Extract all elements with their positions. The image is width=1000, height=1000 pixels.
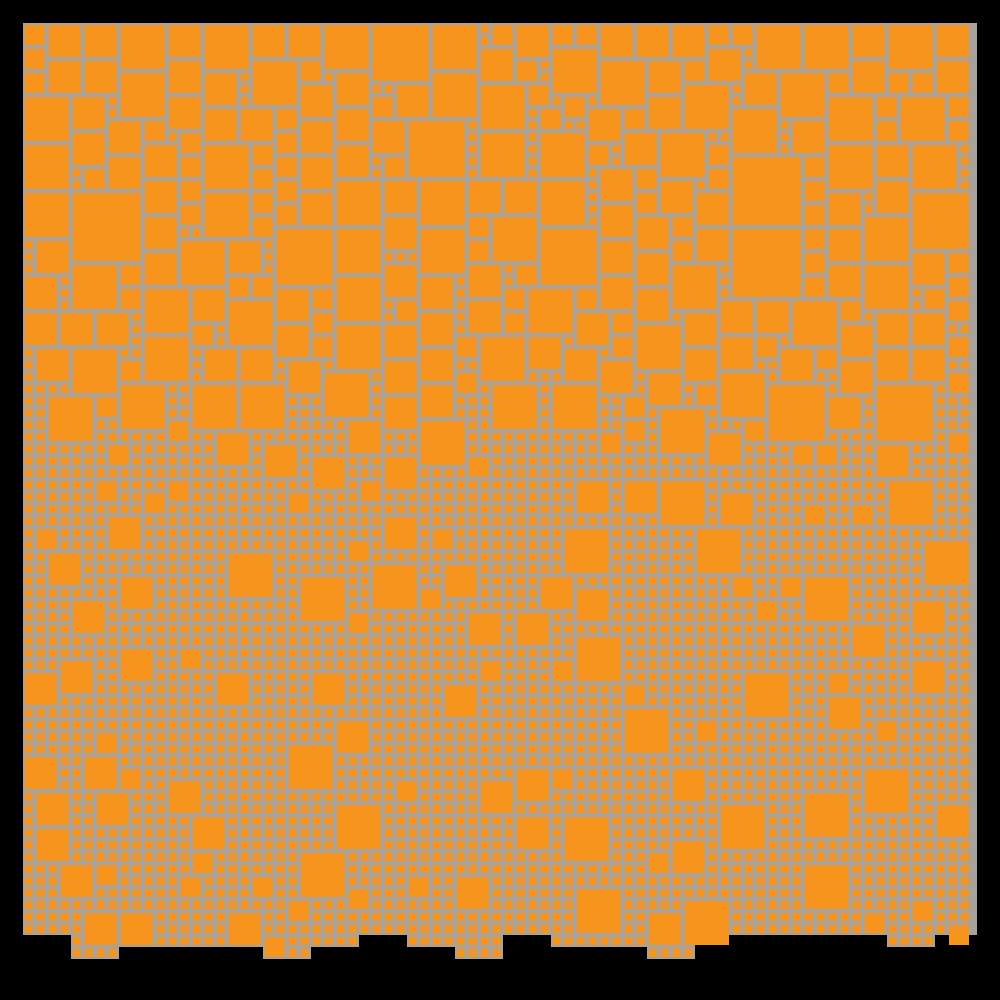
- mosaic-square: [637, 805, 645, 813]
- mosaic-square: [205, 925, 213, 933]
- mosaic-square: [637, 901, 645, 909]
- mosaic-square: [745, 61, 753, 69]
- mosaic-square: [133, 805, 141, 813]
- mosaic-square: [805, 637, 813, 645]
- mosaic-square: [421, 721, 429, 729]
- mosaic-square: [925, 745, 933, 753]
- mosaic-square: [505, 601, 513, 609]
- mosaic-square: [961, 781, 969, 789]
- mosaic-square: [217, 877, 225, 885]
- mosaic-square: [193, 529, 201, 537]
- mosaic-square: [289, 889, 297, 897]
- mosaic-square: [373, 757, 381, 765]
- mosaic-square: [469, 409, 477, 417]
- mosaic-square: [889, 841, 897, 849]
- mosaic-square: [673, 829, 681, 837]
- mosaic-square: [469, 925, 477, 933]
- mosaic-square: [805, 661, 813, 669]
- mosaic-square: [97, 949, 105, 957]
- mosaic-square: [721, 697, 729, 705]
- mosaic-square: [301, 457, 309, 465]
- mosaic-square: [805, 469, 813, 477]
- mosaic-square: [589, 445, 597, 453]
- mosaic-square: [541, 517, 549, 525]
- mosaic-square: [433, 733, 441, 741]
- mosaic-square: [745, 865, 753, 873]
- mosaic-square: [145, 289, 189, 333]
- mosaic-square: [217, 529, 225, 537]
- mosaic-square: [445, 817, 453, 825]
- mosaic-square: [73, 193, 141, 261]
- mosaic-square: [205, 541, 213, 549]
- mosaic-square: [133, 745, 141, 753]
- mosaic-square: [397, 865, 405, 873]
- mosaic-square: [541, 61, 549, 69]
- mosaic-square: [481, 133, 525, 177]
- mosaic-square: [277, 493, 285, 501]
- mosaic-square: [277, 565, 285, 573]
- mosaic-square: [721, 673, 729, 681]
- mosaic-square: [481, 829, 489, 837]
- mosaic-square: [781, 661, 789, 669]
- mosaic-square: [49, 721, 57, 729]
- mosaic-square: [469, 481, 477, 489]
- mosaic-square: [613, 721, 621, 729]
- mosaic-square: [541, 661, 549, 669]
- mosaic-square: [625, 421, 645, 441]
- mosaic-square: [745, 745, 753, 753]
- mosaic-square: [373, 397, 381, 405]
- mosaic-square: [889, 601, 897, 609]
- mosaic-square: [61, 733, 69, 741]
- mosaic-square: [325, 817, 333, 825]
- mosaic-square: [637, 445, 645, 453]
- mosaic-square: [37, 913, 45, 921]
- mosaic-square: [949, 337, 969, 357]
- mosaic-square: [25, 361, 33, 369]
- mosaic-square: [73, 445, 81, 453]
- mosaic-square: [457, 877, 489, 909]
- mosaic-square: [217, 673, 249, 705]
- mosaic-square: [793, 301, 837, 345]
- mosaic-square: [589, 709, 597, 717]
- mosaic-square: [469, 613, 501, 645]
- mosaic-square: [877, 853, 885, 861]
- mosaic-square: [361, 601, 369, 609]
- mosaic-square: [397, 805, 405, 813]
- mosaic-square: [829, 529, 837, 537]
- mosaic-square: [373, 889, 381, 897]
- mosaic-square: [841, 445, 849, 453]
- mosaic-square: [829, 541, 837, 549]
- mosaic-square: [289, 625, 297, 633]
- mosaic-square: [217, 517, 225, 525]
- mosaic-square: [349, 541, 369, 561]
- mosaic-square: [97, 589, 105, 597]
- mosaic-square: [529, 913, 537, 921]
- mosaic-square: [73, 493, 81, 501]
- mosaic-square: [577, 697, 585, 705]
- artwork-frame: [0, 0, 1000, 1000]
- mosaic-square: [805, 745, 813, 753]
- mosaic-square: [73, 457, 81, 465]
- mosaic-square: [793, 853, 801, 861]
- mosaic-square: [409, 613, 417, 621]
- mosaic-square: [493, 721, 501, 729]
- mosaic-square: [313, 541, 321, 549]
- mosaic-square: [445, 805, 453, 813]
- mosaic-square: [145, 877, 153, 885]
- mosaic-square: [337, 913, 345, 921]
- mosaic-square: [505, 433, 513, 441]
- mosaic-square: [409, 493, 417, 501]
- mosaic-square: [517, 925, 525, 933]
- mosaic-square: [349, 637, 357, 645]
- mosaic-square: [877, 817, 885, 825]
- mosaic-square: [361, 769, 369, 777]
- mosaic-square: [277, 589, 285, 597]
- mosaic-square: [277, 877, 285, 885]
- mosaic-square: [685, 829, 693, 837]
- mosaic-square: [325, 937, 333, 945]
- mosaic-square: [265, 481, 273, 489]
- mosaic-square: [217, 769, 225, 777]
- mosaic-square: [625, 685, 645, 705]
- mosaic-square: [673, 889, 681, 897]
- mosaic-square: [493, 709, 501, 717]
- mosaic-square: [901, 865, 909, 873]
- mosaic-square: [745, 793, 753, 801]
- mosaic-square: [913, 901, 933, 921]
- mosaic-square: [769, 661, 777, 669]
- mosaic-square: [205, 109, 237, 141]
- mosaic-square: [445, 793, 453, 801]
- mosaic-square: [745, 757, 753, 765]
- mosaic-square: [445, 637, 453, 645]
- mosaic-square: [937, 469, 945, 477]
- mosaic-square: [613, 685, 621, 693]
- mosaic-square: [733, 421, 741, 429]
- mosaic-square: [385, 253, 393, 261]
- mosaic-square: [805, 493, 813, 501]
- mosaic-square: [481, 541, 489, 549]
- mosaic-square: [541, 421, 549, 429]
- mosaic-square: [85, 445, 93, 453]
- mosaic-square: [241, 481, 249, 489]
- mosaic-square: [913, 589, 921, 597]
- mosaic-square: [49, 625, 57, 633]
- mosaic-square: [949, 673, 957, 681]
- mosaic-square: [829, 469, 837, 477]
- mosaic-square: [337, 325, 381, 369]
- mosaic-square: [709, 685, 717, 693]
- mosaic-square: [289, 829, 297, 837]
- mosaic-square: [721, 589, 729, 597]
- mosaic-square: [181, 445, 189, 453]
- mosaic-square: [157, 829, 165, 837]
- mosaic-square: [637, 553, 645, 561]
- mosaic-square: [685, 721, 693, 729]
- mosaic-square: [817, 469, 825, 477]
- mosaic-square: [817, 445, 837, 465]
- mosaic-square: [397, 721, 405, 729]
- mosaic-square: [565, 865, 573, 873]
- mosaic-square: [85, 469, 93, 477]
- mosaic-square: [25, 481, 33, 489]
- mosaic-square: [625, 529, 633, 537]
- mosaic-square: [421, 481, 429, 489]
- mosaic-square: [205, 745, 213, 753]
- mosaic-square: [409, 721, 417, 729]
- mosaic-square: [637, 253, 669, 285]
- mosaic-square: [169, 637, 177, 645]
- mosaic-square: [493, 541, 501, 549]
- mosaic-square: [577, 517, 585, 525]
- mosaic-square: [157, 613, 165, 621]
- mosaic-square: [49, 493, 57, 501]
- mosaic-square: [553, 457, 561, 465]
- mosaic-square: [109, 589, 117, 597]
- mosaic-square: [301, 553, 309, 561]
- mosaic-square: [61, 301, 69, 309]
- mosaic-square: [25, 673, 57, 705]
- mosaic-square: [385, 877, 393, 885]
- mosaic-square: [733, 661, 741, 669]
- mosaic-square: [625, 877, 633, 885]
- mosaic-square: [961, 397, 969, 405]
- mosaic-square: [757, 577, 765, 585]
- mosaic-square: [841, 565, 849, 573]
- mosaic-square: [853, 61, 885, 93]
- mosaic-square: [805, 853, 813, 861]
- mosaic-square: [781, 625, 789, 633]
- mosaic-square: [193, 493, 201, 501]
- mosaic-square: [613, 865, 621, 873]
- mosaic-square: [433, 901, 441, 909]
- mosaic-square: [289, 577, 297, 585]
- mosaic-square: [241, 841, 249, 849]
- mosaic-square: [481, 913, 489, 921]
- mosaic-square: [877, 757, 885, 765]
- mosaic-square: [289, 925, 297, 933]
- mosaic-square: [889, 901, 897, 909]
- mosaic-square: [601, 937, 609, 945]
- mosaic-square: [589, 217, 597, 225]
- mosaic-square: [265, 925, 273, 933]
- mosaic-square: [181, 577, 189, 585]
- mosaic-square: [625, 769, 633, 777]
- mosaic-square: [505, 901, 513, 909]
- mosaic-square: [913, 541, 921, 549]
- mosaic-square: [589, 793, 597, 801]
- mosaic-square: [877, 493, 885, 501]
- mosaic-square: [565, 121, 573, 129]
- mosaic-square: [445, 649, 453, 657]
- mosaic-square: [349, 481, 357, 489]
- mosaic-square: [169, 589, 177, 597]
- mosaic-square: [73, 169, 81, 177]
- mosaic-square: [133, 901, 141, 909]
- mosaic-square: [217, 805, 225, 813]
- mosaic-square: [385, 397, 417, 429]
- mosaic-square: [745, 541, 753, 549]
- mosaic-square: [601, 733, 609, 741]
- mosaic-square: [289, 733, 297, 741]
- mosaic-square: [637, 649, 645, 657]
- mosaic-square: [661, 181, 693, 213]
- mosaic-square: [205, 613, 213, 621]
- mosaic-square: [421, 565, 429, 573]
- mosaic-square: [469, 421, 477, 429]
- mosaic-square: [61, 445, 69, 453]
- mosaic-square: [889, 685, 897, 693]
- mosaic-square: [721, 481, 729, 489]
- mosaic-square: [829, 517, 837, 525]
- mosaic-square: [517, 61, 537, 81]
- mosaic-square: [673, 241, 693, 261]
- mosaic-square: [25, 397, 33, 405]
- mosaic-square: [613, 421, 621, 429]
- mosaic-square: [949, 361, 957, 369]
- mosaic-square: [541, 493, 549, 501]
- mosaic-square: [325, 733, 333, 741]
- mosaic-square: [37, 469, 45, 477]
- mosaic-square: [949, 397, 957, 405]
- mosaic-square: [721, 373, 765, 417]
- mosaic-square: [421, 577, 429, 585]
- mosaic-square: [181, 625, 189, 633]
- mosaic-square: [85, 529, 93, 537]
- mosaic-square: [733, 781, 741, 789]
- mosaic-square: [793, 841, 801, 849]
- mosaic-square: [421, 229, 465, 273]
- mosaic-square: [865, 193, 873, 201]
- mosaic-square: [565, 517, 573, 525]
- mosaic-square: [565, 505, 573, 513]
- mosaic-square: [469, 265, 501, 297]
- mosaic-square: [577, 433, 585, 441]
- mosaic-square: [409, 937, 417, 945]
- mosaic-square: [61, 313, 93, 345]
- mosaic-square: [373, 913, 381, 921]
- mosaic-square: [253, 769, 261, 777]
- mosaic-square: [493, 385, 537, 429]
- mosaic-square: [829, 385, 837, 393]
- mosaic-square: [133, 853, 141, 861]
- mosaic-square: [757, 565, 765, 573]
- mosaic-square: [361, 709, 369, 717]
- mosaic-square: [361, 853, 369, 861]
- mosaic-square: [301, 433, 309, 441]
- mosaic-square: [73, 817, 81, 825]
- mosaic-square: [769, 385, 825, 441]
- mosaic-square: [265, 649, 273, 657]
- mosaic-square: [181, 853, 189, 861]
- mosaic-square: [337, 565, 345, 573]
- mosaic-square: [649, 901, 657, 909]
- mosaic-square: [829, 229, 861, 261]
- mosaic-square: [661, 637, 669, 645]
- mosaic-square: [445, 901, 453, 909]
- mosaic-square: [541, 649, 549, 657]
- mosaic-square: [37, 793, 69, 825]
- mosaic-square: [109, 565, 117, 573]
- mosaic-square: [517, 25, 549, 57]
- mosaic-square: [685, 949, 693, 957]
- mosaic-square: [409, 709, 417, 717]
- mosaic-square: [265, 529, 273, 537]
- mosaic-square: [265, 445, 297, 477]
- mosaic-square: [913, 649, 921, 657]
- mosaic-square: [445, 721, 453, 729]
- mosaic-square: [169, 745, 177, 753]
- mosaic-square: [517, 913, 525, 921]
- mosaic-square: [253, 721, 261, 729]
- mosaic-square: [349, 493, 357, 501]
- mosaic-square: [385, 793, 393, 801]
- mosaic-square: [289, 865, 297, 873]
- mosaic-square: [769, 913, 777, 921]
- mosaic-square: [625, 757, 633, 765]
- mosaic-square: [601, 877, 609, 885]
- mosaic-square: [205, 889, 213, 897]
- mosaic-square: [433, 805, 441, 813]
- mosaic-square: [601, 781, 609, 789]
- mosaic-square: [613, 553, 621, 561]
- mosaic-square: [37, 829, 69, 861]
- mosaic-square: [61, 649, 69, 657]
- mosaic-square: [625, 637, 633, 645]
- mosaic-square: [205, 877, 213, 885]
- mosaic-square: [733, 793, 741, 801]
- mosaic-square: [649, 553, 657, 561]
- mosaic-square: [781, 829, 789, 837]
- mosaic-square: [505, 649, 513, 657]
- mosaic-square: [529, 541, 537, 549]
- mosaic-square: [325, 421, 333, 429]
- mosaic-square: [781, 517, 789, 525]
- mosaic-square: [877, 517, 885, 525]
- mosaic-square: [385, 865, 393, 873]
- mosaic-square: [529, 577, 537, 585]
- mosaic-square: [601, 205, 633, 237]
- mosaic-square: [637, 637, 645, 645]
- mosaic-square: [373, 877, 381, 885]
- mosaic-square: [361, 481, 381, 501]
- mosaic-square: [769, 445, 777, 453]
- mosaic-square: [733, 25, 753, 45]
- mosaic-square: [181, 457, 189, 465]
- mosaic-square: [661, 889, 669, 897]
- mosaic-square: [637, 625, 645, 633]
- mosaic-square: [49, 649, 57, 657]
- mosaic-square: [433, 661, 441, 669]
- mosaic-square: [913, 457, 921, 465]
- mosaic-square: [853, 661, 861, 669]
- mosaic-square: [925, 793, 933, 801]
- mosaic-square: [73, 841, 81, 849]
- mosaic-square: [61, 469, 69, 477]
- mosaic-square: [685, 565, 693, 573]
- mosaic-square: [493, 769, 501, 777]
- mosaic-square: [637, 217, 669, 249]
- mosaic-square: [709, 517, 717, 525]
- mosaic-square: [949, 301, 969, 321]
- mosaic-square: [445, 625, 453, 633]
- mosaic-square: [445, 733, 453, 741]
- mosaic-square: [685, 709, 693, 717]
- mosaic-square: [253, 781, 261, 789]
